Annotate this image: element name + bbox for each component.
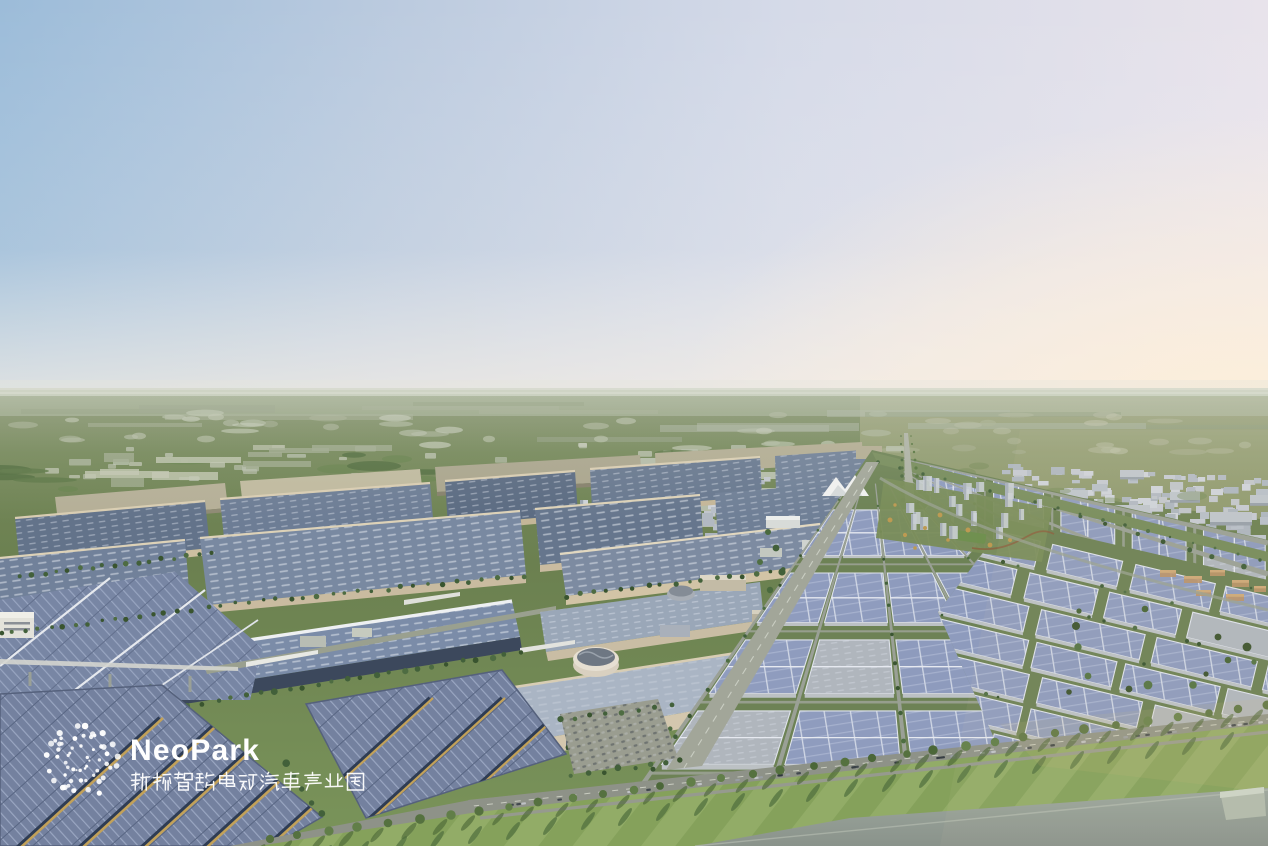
svg-text:NeoPark: NeoPark bbox=[130, 734, 260, 767]
